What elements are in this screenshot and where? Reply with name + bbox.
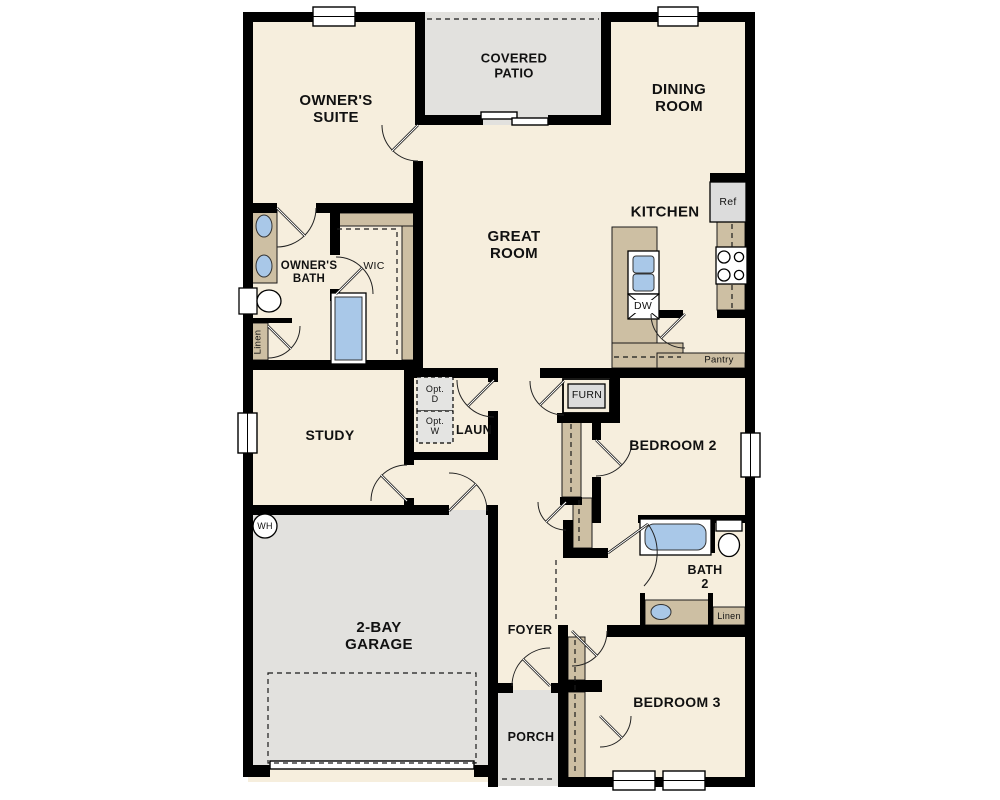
label-line: ROOM bbox=[488, 246, 541, 263]
label-refrigerator: Ref bbox=[719, 197, 736, 209]
label-foyer: FOYER bbox=[508, 623, 553, 637]
label-owners-suite: OWNER'S SUITE bbox=[299, 93, 372, 127]
label-bedroom3: BEDROOM 3 bbox=[633, 695, 721, 711]
window bbox=[658, 7, 698, 26]
bath2-sink-icon bbox=[651, 605, 671, 620]
kitchen-sink-icon bbox=[628, 251, 659, 294]
bathtub-icon bbox=[640, 519, 711, 555]
label-pantry: Pantry bbox=[704, 356, 733, 367]
hall-closet bbox=[573, 498, 592, 548]
label-line: D bbox=[426, 394, 444, 404]
label-furnace: FURN bbox=[572, 390, 602, 402]
label-line: SUITE bbox=[299, 110, 372, 127]
window bbox=[741, 433, 760, 477]
label-line: DINING bbox=[652, 82, 706, 99]
window bbox=[238, 413, 257, 453]
wic-shelf-top bbox=[333, 213, 415, 226]
window bbox=[613, 771, 655, 790]
garage-door bbox=[270, 761, 474, 769]
bedroom3-closet-lower bbox=[568, 692, 585, 778]
label-line: OWNER'S bbox=[281, 260, 338, 273]
label-line: BATH bbox=[688, 563, 723, 577]
label-line: ROOM bbox=[652, 99, 706, 116]
label-water-heater: WH bbox=[257, 521, 273, 531]
toilet-icon bbox=[716, 520, 742, 557]
label-line: Opt. bbox=[426, 416, 444, 426]
label-line: GREAT bbox=[488, 229, 541, 246]
label-great-room: GREAT ROOM bbox=[488, 229, 541, 263]
floor-plan-drawing bbox=[0, 0, 1000, 800]
window bbox=[313, 7, 355, 26]
bath-sink-icon bbox=[256, 255, 272, 277]
label-line: BATH bbox=[281, 273, 338, 286]
label-line: COVERED bbox=[481, 51, 547, 66]
cooktop-icon bbox=[716, 247, 747, 284]
label-kitchen: KITCHEN bbox=[631, 205, 700, 222]
label-line: W bbox=[426, 426, 444, 436]
label-garage: 2-BAY GARAGE bbox=[345, 620, 413, 654]
label-porch: PORCH bbox=[508, 730, 555, 744]
label-covered-patio: COVERED PATIO bbox=[481, 51, 547, 80]
label-wic: WIC bbox=[363, 261, 384, 273]
label-line: PATIO bbox=[481, 66, 547, 81]
label-bedroom2: BEDROOM 2 bbox=[629, 438, 717, 454]
window bbox=[663, 771, 705, 790]
label-line: GARAGE bbox=[345, 637, 413, 654]
label-line: 2 bbox=[688, 577, 723, 591]
bedroom3-closet-upper bbox=[568, 637, 585, 680]
floor-plan: COVERED PATIO OWNER'S SUITE DINING ROOM … bbox=[0, 0, 1000, 800]
label-bath2: BATH 2 bbox=[688, 563, 723, 591]
label-owners-bath: OWNER'S BATH bbox=[281, 260, 338, 286]
floor-areas bbox=[248, 12, 750, 786]
label-dining-room: DINING ROOM bbox=[652, 82, 706, 116]
label-dishwasher: DW bbox=[634, 301, 652, 313]
label-opt-dryer: Opt. D bbox=[426, 384, 444, 404]
label-line: Opt. bbox=[426, 384, 444, 394]
label-line: 2-BAY bbox=[345, 620, 413, 637]
label-opt-washer: Opt. W bbox=[426, 416, 444, 436]
label-bath2-linen: Linen bbox=[717, 611, 741, 621]
label-line: OWNER'S bbox=[299, 93, 372, 110]
bedroom2-closet bbox=[562, 421, 581, 497]
shower-icon bbox=[331, 293, 366, 364]
label-owners-linen: Linen bbox=[254, 330, 265, 355]
bath-sink-icon bbox=[256, 215, 272, 237]
label-study: STUDY bbox=[306, 428, 355, 444]
label-laundry: LAUN bbox=[456, 423, 492, 437]
